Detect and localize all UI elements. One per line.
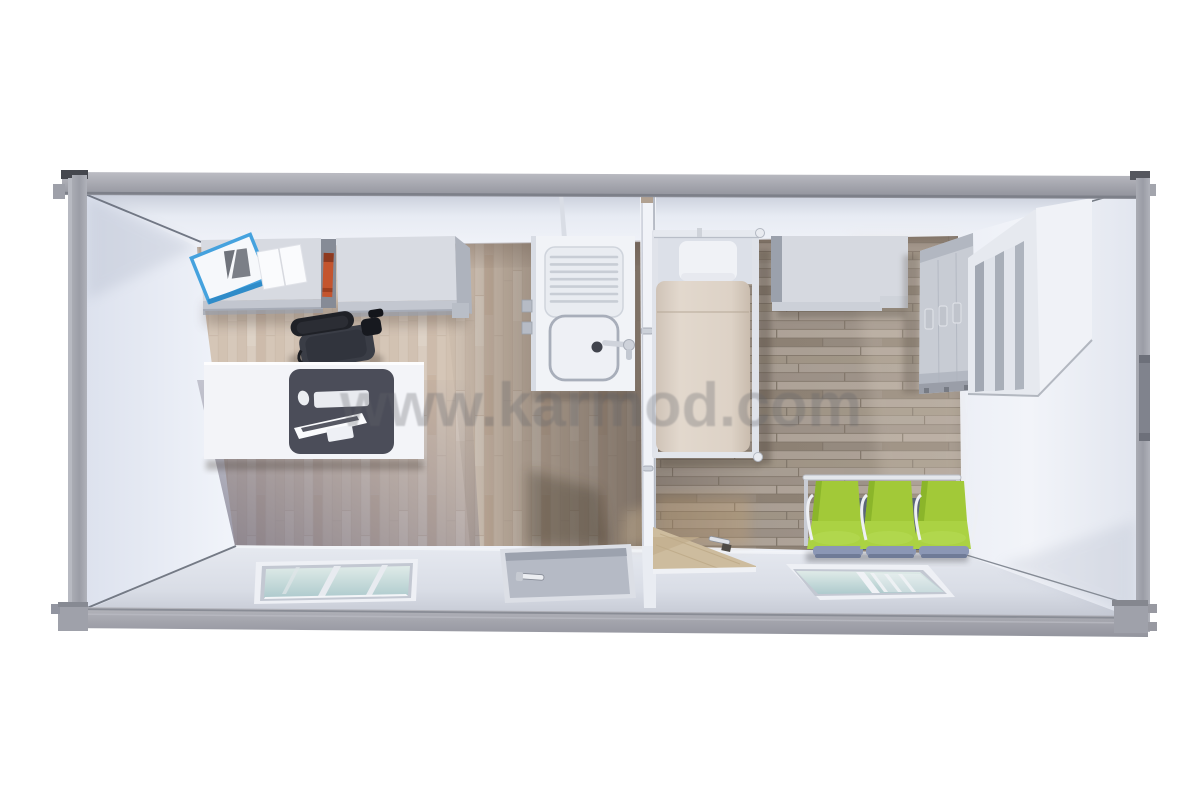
svg-text:www.karmod.com: www.karmod.com	[339, 371, 862, 440]
